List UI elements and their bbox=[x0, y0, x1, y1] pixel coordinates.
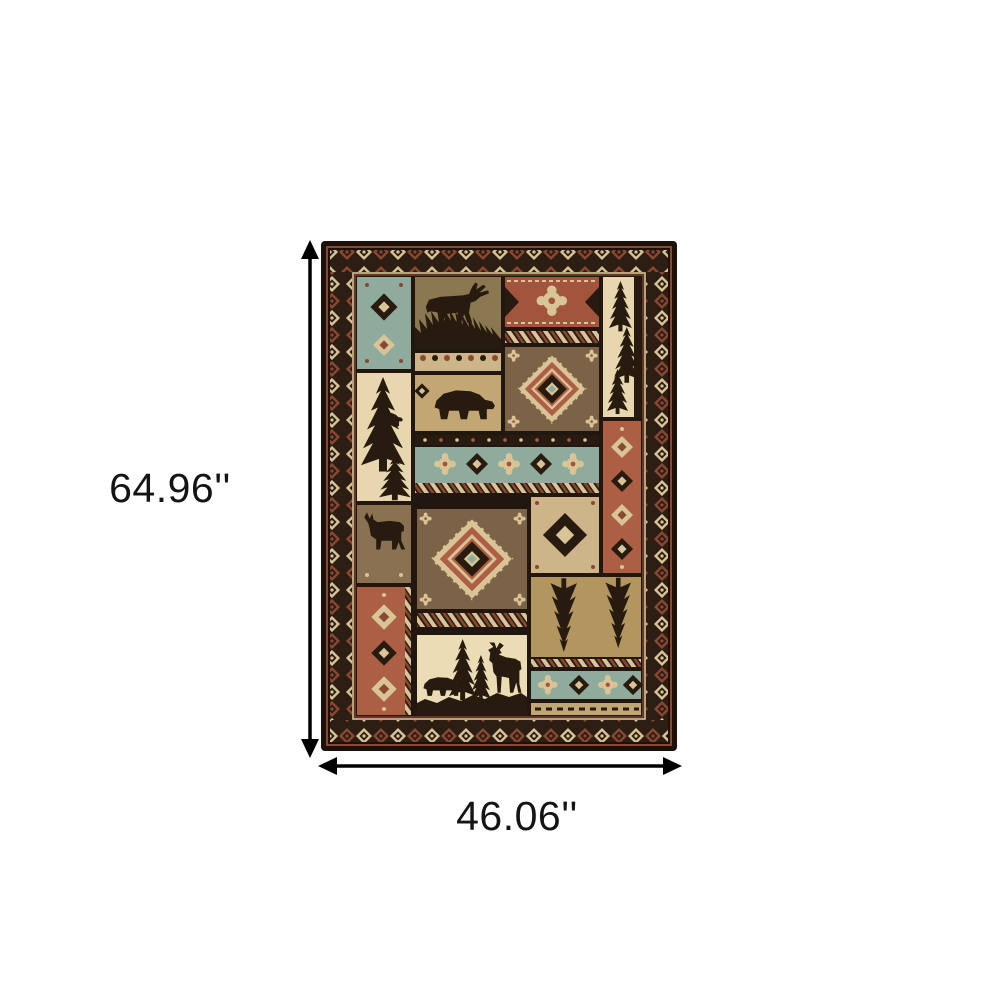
panel-teal-geometric bbox=[357, 277, 411, 369]
arrow-up-icon bbox=[301, 240, 319, 259]
teal-motif-band-2 bbox=[531, 671, 643, 699]
border-diamond-chain-left bbox=[330, 272, 352, 720]
panel-pine-bear bbox=[357, 373, 411, 501]
rope-band bbox=[505, 331, 599, 343]
bead-band bbox=[415, 353, 501, 371]
panel-tan-motif bbox=[531, 497, 599, 573]
panel-pine-trees bbox=[603, 277, 641, 417]
teal-motif-band bbox=[415, 435, 599, 493]
panel-rust-geometric bbox=[505, 277, 599, 343]
width-dimension-arrow bbox=[318, 752, 682, 780]
rug-image bbox=[321, 241, 677, 751]
rug-field bbox=[356, 276, 643, 716]
border-diamond-chain-right bbox=[646, 272, 668, 720]
rope-band bbox=[415, 483, 599, 493]
rug-svg bbox=[321, 241, 677, 751]
panel-medallion-1 bbox=[505, 347, 599, 431]
arrow-left-icon bbox=[318, 757, 337, 775]
panel-moose bbox=[415, 277, 501, 349]
border-diamond-chain-bottom bbox=[330, 720, 668, 742]
tan-strip bbox=[531, 703, 641, 715]
arrow-down-icon bbox=[301, 739, 319, 758]
border-diamond-chain-top bbox=[330, 250, 668, 272]
rope-band bbox=[417, 613, 527, 627]
width-label: 46.06'' bbox=[442, 793, 592, 840]
rope-band bbox=[531, 659, 641, 667]
arrow-right-icon bbox=[663, 757, 682, 775]
panel-rust-diamonds bbox=[603, 421, 641, 573]
panel-bear bbox=[414, 375, 501, 431]
panel-wildlife-scene bbox=[417, 635, 527, 715]
panel-deer bbox=[357, 505, 411, 583]
panel-rust-column bbox=[357, 587, 411, 715]
height-label: 64.96'' bbox=[95, 465, 245, 512]
product-dimension-image: 64.96'' 46.06'' bbox=[0, 0, 1000, 1000]
height-dimension-arrow bbox=[296, 240, 324, 758]
panel-pine-boughs bbox=[531, 577, 641, 667]
